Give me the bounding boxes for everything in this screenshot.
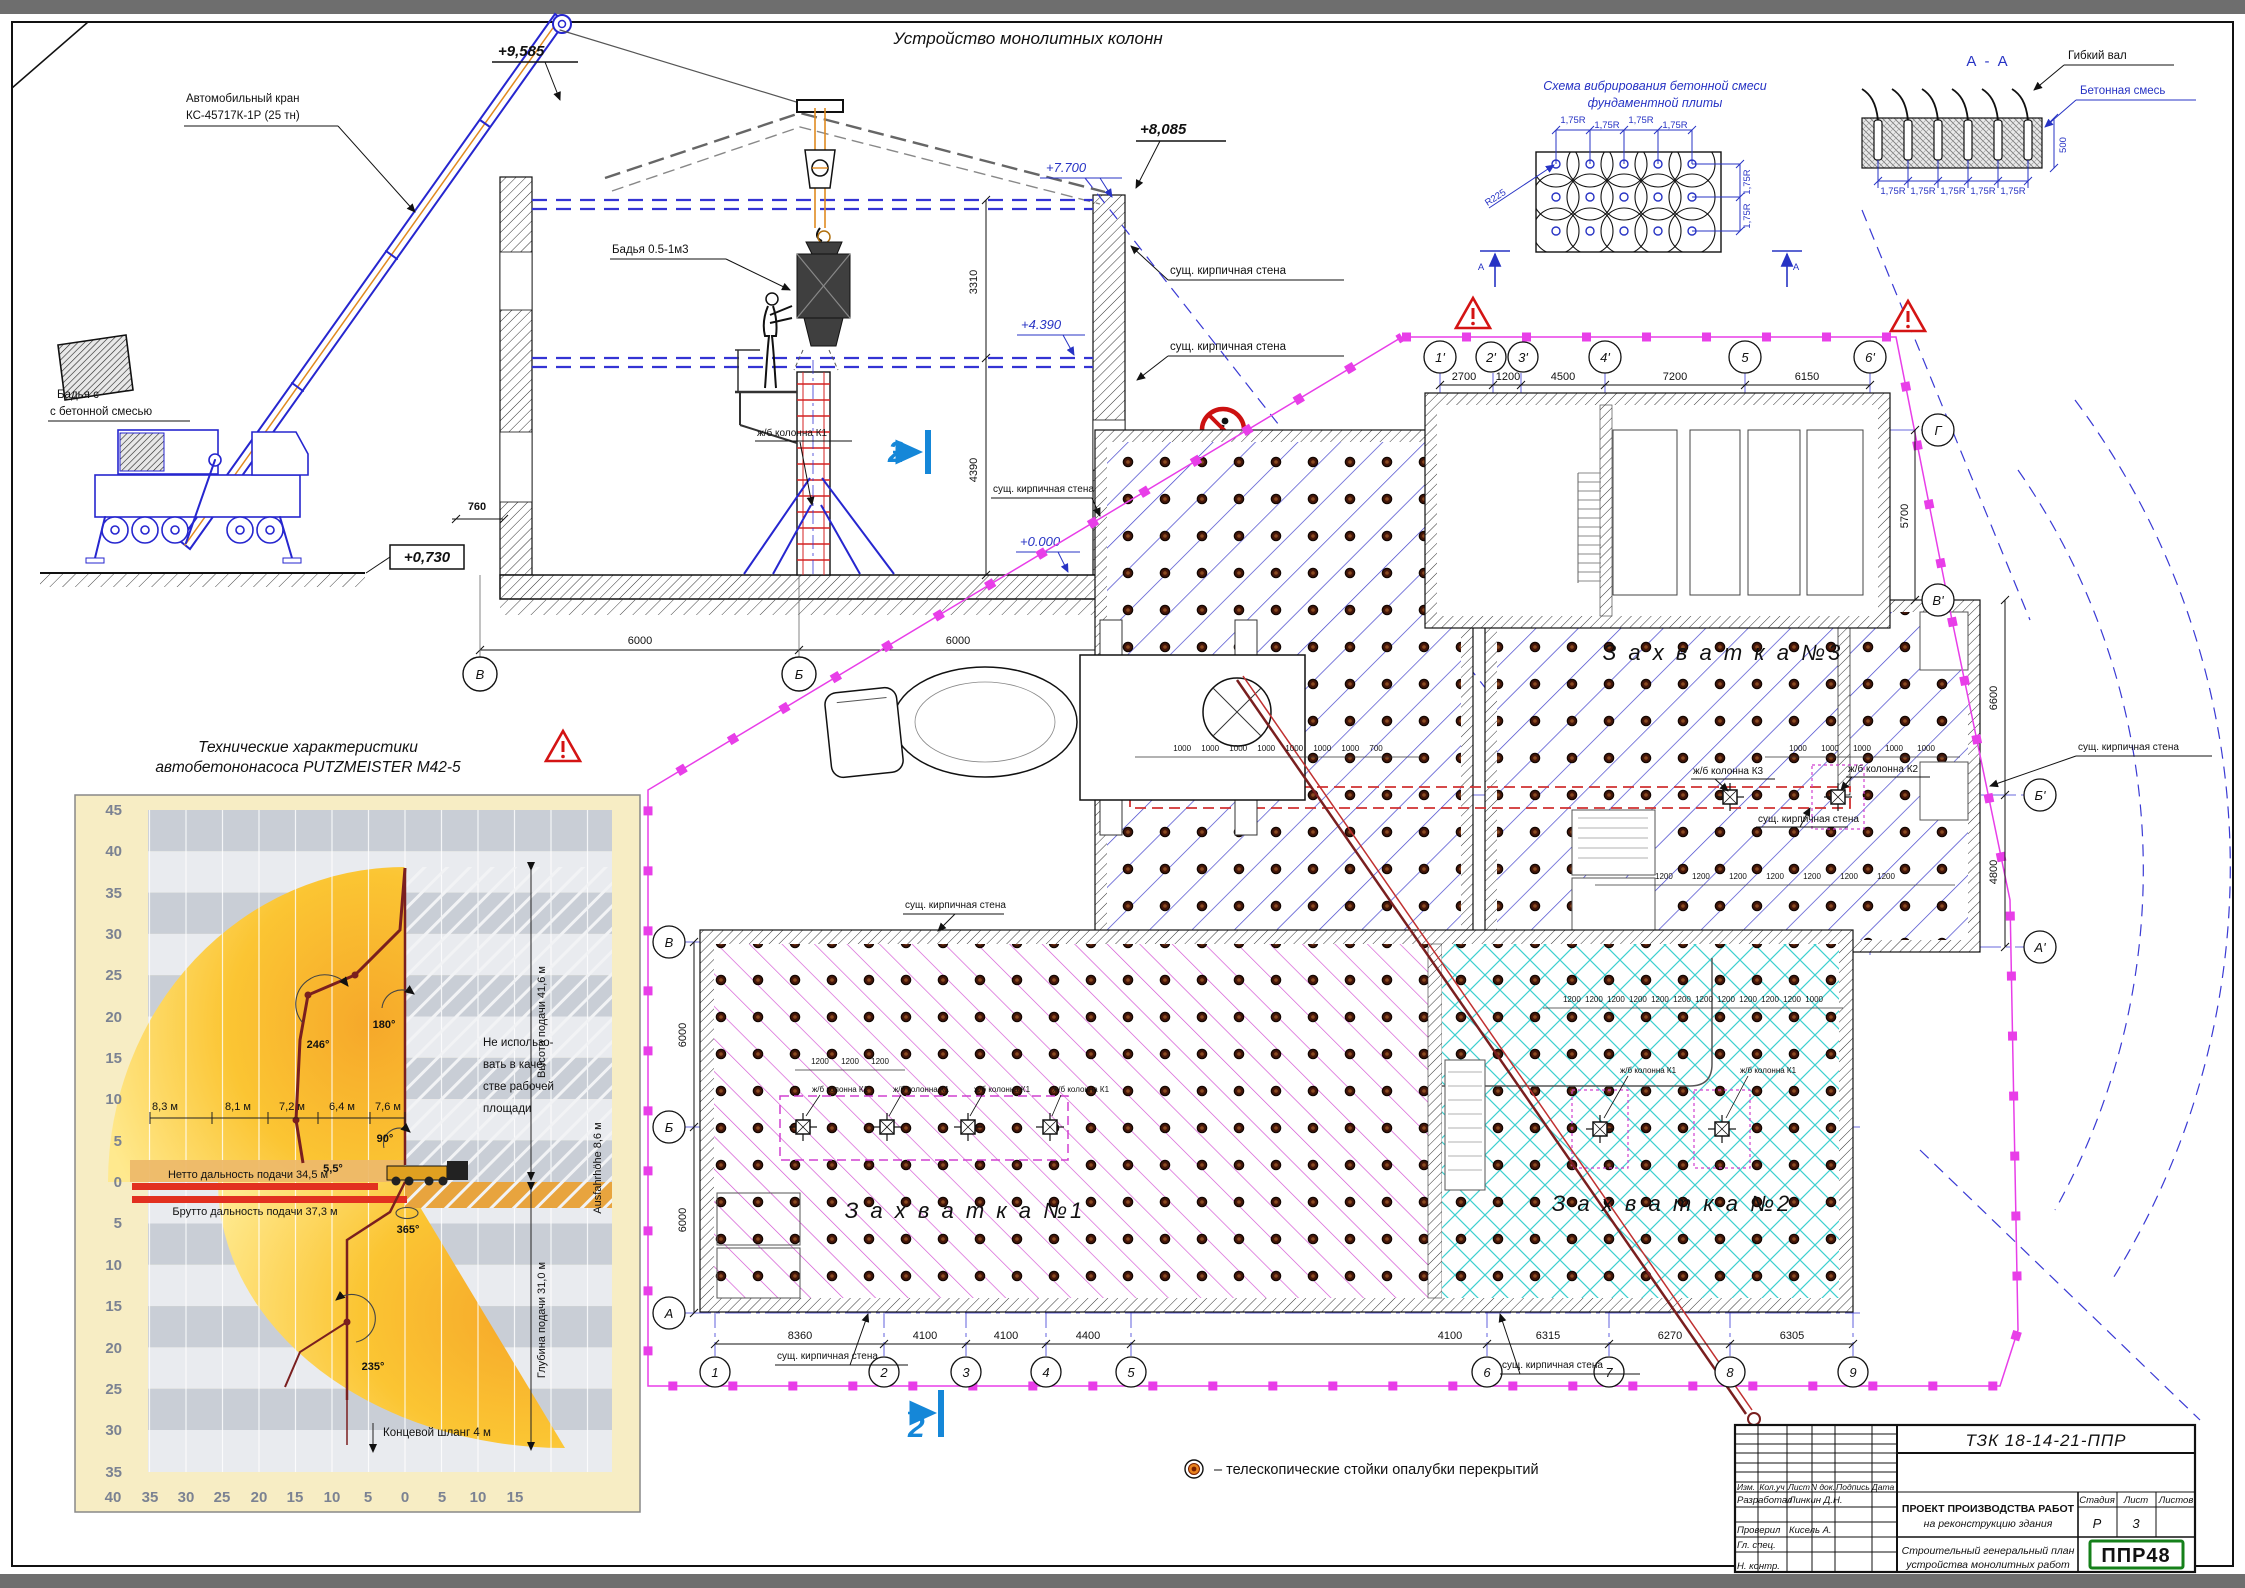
svg-text:Дата: Дата bbox=[1871, 1482, 1895, 1492]
svg-text:3': 3' bbox=[1518, 350, 1528, 365]
svg-text:1,75R: 1,75R bbox=[1970, 186, 1995, 197]
svg-text:180°: 180° bbox=[373, 1019, 396, 1031]
pump-chart: Технические характеристики автобетононас… bbox=[75, 739, 640, 1512]
svg-text:сущ. кирпичная стена: сущ. кирпичная стена bbox=[993, 484, 1094, 495]
svg-text:1,75R: 1,75R bbox=[1940, 186, 1965, 197]
svg-text:Кол.уч: Кол.уч bbox=[1759, 1482, 1785, 1492]
svg-text:6000: 6000 bbox=[677, 1208, 689, 1232]
svg-text:площади: площади bbox=[483, 1103, 531, 1115]
svg-text:6000: 6000 bbox=[946, 635, 970, 647]
svg-text:35: 35 bbox=[105, 885, 122, 902]
svg-text:сущ. кирпичная стена: сущ. кирпичная стена bbox=[1758, 814, 1859, 825]
svg-text:6000: 6000 bbox=[677, 1023, 689, 1047]
svg-text:1,75R: 1,75R bbox=[1662, 120, 1687, 131]
svg-text:8360: 8360 bbox=[788, 1330, 812, 1342]
svg-text:4': 4' bbox=[1600, 350, 1610, 365]
svg-text:+4.390: +4.390 bbox=[1021, 317, 1062, 332]
drawing-canvas: Устройство монолитных колонн Автомобильн… bbox=[0, 0, 2245, 1588]
svg-text:6305: 6305 bbox=[1780, 1330, 1804, 1342]
svg-text:Нетто дальность подачи 34,5 м: Нетто дальность подачи 34,5 м bbox=[168, 1169, 328, 1181]
svg-text:1000 1000 1000 1000 1000 1000: 1000 1000 1000 1000 1000 1000 1000 700 bbox=[1173, 744, 1383, 753]
svg-text:6: 6 bbox=[1483, 1365, 1491, 1380]
svg-text:ж/б колонна К2: ж/б колонна К2 bbox=[1848, 763, 1919, 775]
svg-text:6150: 6150 bbox=[1795, 371, 1819, 383]
svg-text:2': 2' bbox=[1485, 350, 1496, 365]
svg-text:10: 10 bbox=[105, 1257, 122, 1274]
svg-text:90°: 90° bbox=[377, 1133, 394, 1145]
svg-text:0: 0 bbox=[401, 1489, 409, 1506]
svg-text:1,75R: 1,75R bbox=[1560, 115, 1585, 126]
svg-text:1000 1000 1000 1000 1000: 1000 1000 1000 1000 1000 bbox=[1789, 744, 1935, 753]
svg-text:45: 45 bbox=[105, 802, 122, 819]
svg-text:1,75R: 1,75R bbox=[1628, 115, 1653, 126]
svg-text:0: 0 bbox=[114, 1174, 122, 1191]
svg-text:30: 30 bbox=[178, 1489, 195, 1506]
svg-text:7,2 м: 7,2 м bbox=[279, 1101, 305, 1113]
svg-text:2: 2 bbox=[907, 1411, 925, 1444]
svg-text:Г: Г bbox=[1934, 423, 1942, 438]
svg-text:40: 40 bbox=[105, 843, 122, 860]
svg-text:760: 760 bbox=[468, 501, 486, 513]
svg-text:Схема вибрирования бетонной см: Схема вибрирования бетонной смеси bbox=[1543, 79, 1767, 93]
svg-text:+0.000: +0.000 bbox=[1020, 534, 1061, 549]
svg-text:25: 25 bbox=[214, 1489, 231, 1506]
svg-text:3310: 3310 bbox=[968, 270, 980, 294]
svg-text:В: В bbox=[665, 935, 674, 950]
svg-text:4500: 4500 bbox=[1551, 371, 1575, 383]
svg-text:20: 20 bbox=[105, 1009, 122, 1026]
svg-text:15: 15 bbox=[507, 1489, 524, 1506]
svg-text:1': 1' bbox=[1435, 350, 1445, 365]
lower-building bbox=[700, 930, 1853, 1312]
logo-text: ППР48 bbox=[2101, 1545, 2170, 1567]
svg-text:устройства монолитных работ: устройства монолитных работ bbox=[1905, 1559, 2070, 1571]
svg-text:5: 5 bbox=[1741, 350, 1749, 365]
svg-text:А: А bbox=[664, 1306, 674, 1321]
svg-text:Р: Р bbox=[2093, 1516, 2102, 1531]
svg-text:5: 5 bbox=[364, 1489, 372, 1506]
zone3-title: З а х в а т к а №3 bbox=[1603, 640, 1843, 665]
svg-text:5: 5 bbox=[114, 1133, 122, 1150]
svg-text:1200: 1200 bbox=[1496, 371, 1520, 383]
svg-text:9: 9 bbox=[1849, 1365, 1856, 1380]
svg-text:Б: Б bbox=[665, 1120, 674, 1135]
svg-text:5: 5 bbox=[438, 1489, 446, 1506]
svg-text:с бетонной смесью: с бетонной смесью bbox=[50, 406, 152, 418]
svg-text:Стадия: Стадия bbox=[2079, 1495, 2115, 1506]
svg-text:4100: 4100 bbox=[994, 1330, 1018, 1342]
svg-text:2: 2 bbox=[879, 1365, 888, 1380]
svg-text:сущ. кирпичная стена: сущ. кирпичная стена bbox=[905, 900, 1006, 911]
svg-text:1,75R: 1,75R bbox=[1742, 203, 1753, 228]
svg-text:365°: 365° bbox=[397, 1224, 420, 1236]
svg-text:1200 1200 1200 1200 1200 1200: 1200 1200 1200 1200 1200 1200 1200 bbox=[1655, 872, 1895, 881]
svg-text:ПРОЕКТ ПРОИЗВОДСТВА РАБОТ: ПРОЕКТ ПРОИЗВОДСТВА РАБОТ bbox=[1902, 1503, 2075, 1515]
svg-text:3: 3 bbox=[962, 1365, 970, 1380]
svg-text:ж/б колонна К3: ж/б колонна К3 bbox=[1693, 765, 1764, 777]
svg-text:В': В' bbox=[1932, 593, 1944, 608]
svg-text:Глубина подачи 31,0 м: Глубина подачи 31,0 м bbox=[536, 1262, 548, 1378]
svg-text:ж/б колонна К1: ж/б колонна К1 bbox=[893, 1085, 950, 1094]
svg-text:8,3 м: 8,3 м bbox=[152, 1101, 178, 1113]
svg-text:ж/б колонна К1: ж/б колонна К1 bbox=[974, 1085, 1031, 1094]
svg-text:8: 8 bbox=[1726, 1365, 1734, 1380]
svg-text:1: 1 bbox=[711, 1365, 718, 1380]
svg-text:10: 10 bbox=[324, 1489, 341, 1506]
svg-text:+0,730: +0,730 bbox=[404, 549, 451, 566]
svg-text:15: 15 bbox=[105, 1050, 122, 1067]
svg-text:Листов: Листов bbox=[2158, 1495, 2194, 1506]
svg-text:Изм.: Изм. bbox=[1737, 1482, 1755, 1492]
svg-text:ж/б колонна К1: ж/б колонна К1 bbox=[1053, 1085, 1110, 1094]
section-title: Устройство монолитных колонн bbox=[892, 29, 1163, 48]
zone1-title: З а х в а т к а №1 bbox=[845, 1198, 1085, 1223]
svg-text:10: 10 bbox=[105, 1091, 122, 1108]
svg-text:Автомобильный кран: Автомобильный кран bbox=[186, 93, 299, 105]
svg-text:1,75R: 1,75R bbox=[1742, 169, 1753, 194]
svg-text:Брутто дальность подачи 37,3 м: Брутто дальность подачи 37,3 м bbox=[172, 1206, 337, 1218]
svg-text:Строительный генеральный план: Строительный генеральный план bbox=[1902, 1545, 2075, 1557]
svg-text:3: 3 bbox=[2132, 1516, 2140, 1531]
svg-text:6315: 6315 bbox=[1536, 1330, 1560, 1342]
svg-text:сущ. кирпичная стена: сущ. кирпичная стена bbox=[1170, 265, 1287, 277]
upper-rooms-building bbox=[1425, 393, 1890, 628]
ground-left bbox=[40, 573, 365, 587]
drawing-sheet: Устройство монолитных колонн Автомобильн… bbox=[0, 0, 2245, 1588]
svg-text:Бадья с: Бадья с bbox=[57, 389, 99, 401]
svg-text:Ausfahrhöhe 8,6 м: Ausfahrhöhe 8,6 м bbox=[592, 1122, 604, 1213]
svg-text:Гибкий вал: Гибкий вал bbox=[2068, 50, 2127, 62]
svg-text:Гл. спец.: Гл. спец. bbox=[1737, 1540, 1776, 1551]
svg-text:Бадья 0.5-1м3: Бадья 0.5-1м3 bbox=[612, 244, 689, 256]
svg-text:35: 35 bbox=[105, 1464, 122, 1481]
svg-text:А: А bbox=[1478, 262, 1485, 273]
svg-text:5: 5 bbox=[1127, 1365, 1135, 1380]
svg-text:4: 4 bbox=[1042, 1365, 1049, 1380]
svg-text:7: 7 bbox=[1605, 1365, 1613, 1380]
svg-text:ТЗК 18-14-21-ППР: ТЗК 18-14-21-ППР bbox=[1965, 1431, 2126, 1450]
legend: – телескопические стойки опалубки перекр… bbox=[1185, 1460, 1539, 1478]
svg-text:6': 6' bbox=[1865, 350, 1875, 365]
svg-text:сущ. кирпичная стена: сущ. кирпичная стена bbox=[2078, 742, 2179, 753]
svg-text:КС-45717К-1Р (25 тн): КС-45717К-1Р (25 тн) bbox=[186, 110, 300, 122]
svg-text:25: 25 bbox=[105, 967, 122, 984]
svg-text:500: 500 bbox=[2058, 137, 2069, 153]
svg-text:1200 1200 1200 1200 1200 1200: 1200 1200 1200 1200 1200 1200 1200 1200 … bbox=[1563, 995, 1824, 1004]
svg-text:1,75R: 1,75R bbox=[1880, 186, 1905, 197]
svg-text:25: 25 bbox=[105, 1381, 122, 1398]
svg-text:+7.700: +7.700 bbox=[1046, 160, 1087, 175]
svg-text:– телескопические стойки опал: – телескопические стойки опалубки перекр… bbox=[1214, 1462, 1539, 1478]
svg-text:на реконструкцию здания: на реконструкцию здания bbox=[1924, 1518, 2053, 1530]
svg-text:ж/б колонна К1: ж/б колонна К1 bbox=[1620, 1066, 1677, 1075]
svg-text:5: 5 bbox=[114, 1215, 122, 1232]
svg-text:15: 15 bbox=[287, 1489, 304, 1506]
svg-text:А': А' bbox=[2033, 940, 2046, 955]
svg-text:Б': Б' bbox=[2035, 788, 2046, 803]
svg-text:1,75R: 1,75R bbox=[1910, 186, 1935, 197]
svg-text:2700: 2700 bbox=[1452, 371, 1476, 383]
svg-text:1200 1200 1200: 1200 1200 1200 bbox=[811, 1057, 889, 1066]
svg-text:Подпись: Подпись bbox=[1836, 1482, 1870, 1492]
svg-text:6,4 м: 6,4 м bbox=[329, 1101, 355, 1113]
svg-text:4100: 4100 bbox=[1438, 1330, 1462, 1342]
title-block: ТЗК 18-14-21-ППР Изм. Кол.уч Лист N док.… bbox=[1735, 1425, 2195, 1572]
svg-text:6600: 6600 bbox=[1988, 686, 2000, 710]
svg-text:Технические характеристики: Технические характеристики bbox=[198, 739, 418, 756]
svg-text:стве рабочей: стве рабочей bbox=[483, 1081, 554, 1093]
svg-text:1,75R: 1,75R bbox=[1594, 120, 1619, 131]
svg-text:сущ. кирпичная стена: сущ. кирпичная стена bbox=[1170, 341, 1287, 353]
svg-text:ж/б колонна К1: ж/б колонна К1 bbox=[812, 1085, 869, 1094]
zone2-title: З а х в а т к а №2 bbox=[1552, 1191, 1792, 1216]
svg-text:6270: 6270 bbox=[1658, 1330, 1682, 1342]
svg-text:7200: 7200 bbox=[1663, 371, 1687, 383]
svg-text:+9,585: +9,585 bbox=[498, 43, 545, 60]
svg-text:Н. контр.: Н. контр. bbox=[1737, 1561, 1780, 1572]
svg-text:Разработал: Разработал bbox=[1737, 1495, 1793, 1506]
svg-text:автобетононасоса PUTZMEISTER M: автобетононасоса PUTZMEISTER M42-5 bbox=[155, 759, 461, 776]
svg-text:В: В bbox=[476, 667, 485, 682]
svg-text:Проверил: Проверил bbox=[1737, 1525, 1781, 1536]
svg-text:7,6 м: 7,6 м bbox=[375, 1101, 401, 1113]
svg-text:10: 10 bbox=[470, 1489, 487, 1506]
svg-text:4400: 4400 bbox=[1076, 1330, 1100, 1342]
svg-text:15: 15 bbox=[105, 1298, 122, 1315]
svg-text:Лист: Лист bbox=[2123, 1495, 2149, 1506]
svg-text:Концевой шланг 4 м: Концевой шланг 4 м bbox=[383, 1427, 491, 1439]
svg-text:N док.: N док. bbox=[1811, 1482, 1835, 1492]
svg-text:20: 20 bbox=[251, 1489, 268, 1506]
svg-text:4800: 4800 bbox=[1988, 860, 2000, 884]
svg-text:1,75R: 1,75R bbox=[2000, 186, 2025, 197]
svg-text:30: 30 bbox=[105, 1422, 122, 1439]
svg-text:20: 20 bbox=[105, 1340, 122, 1357]
svg-text:фундаментной плиты: фундаментной плиты bbox=[1588, 96, 1723, 110]
svg-text:Лист: Лист bbox=[1787, 1482, 1810, 1492]
svg-text:А: А bbox=[1793, 262, 1800, 273]
svg-text:4390: 4390 bbox=[968, 458, 980, 482]
svg-text:6000: 6000 bbox=[628, 635, 652, 647]
svg-text:40: 40 bbox=[105, 1489, 122, 1506]
svg-text:ж/б колонна К1: ж/б колонна К1 bbox=[757, 427, 828, 439]
svg-text:8,1 м: 8,1 м bbox=[225, 1101, 251, 1113]
svg-text:Б: Б bbox=[795, 667, 804, 682]
svg-text:Бетонная смесь: Бетонная смесь bbox=[2080, 85, 2165, 97]
svg-text:4100: 4100 bbox=[913, 1330, 937, 1342]
svg-text:Линкин Д.Н.: Линкин Д.Н. bbox=[1788, 1495, 1843, 1506]
svg-text:А - А: А - А bbox=[1966, 53, 2009, 70]
svg-text:Высота подачи 41,6 м: Высота подачи 41,6 м bbox=[536, 966, 548, 1078]
svg-text:Кисель А.: Кисель А. bbox=[1789, 1525, 1832, 1536]
svg-text:30: 30 bbox=[105, 926, 122, 943]
svg-text:ж/б колонна К1: ж/б колонна К1 bbox=[1740, 1066, 1797, 1075]
svg-text:35: 35 bbox=[142, 1489, 159, 1506]
svg-text:+8,085: +8,085 bbox=[1140, 121, 1187, 138]
svg-text:5700: 5700 bbox=[1899, 504, 1911, 528]
svg-text:235°: 235° bbox=[362, 1361, 385, 1373]
svg-text:сущ. кирпичная стена: сущ. кирпичная стена bbox=[777, 1351, 878, 1362]
svg-text:246°: 246° bbox=[307, 1039, 330, 1051]
